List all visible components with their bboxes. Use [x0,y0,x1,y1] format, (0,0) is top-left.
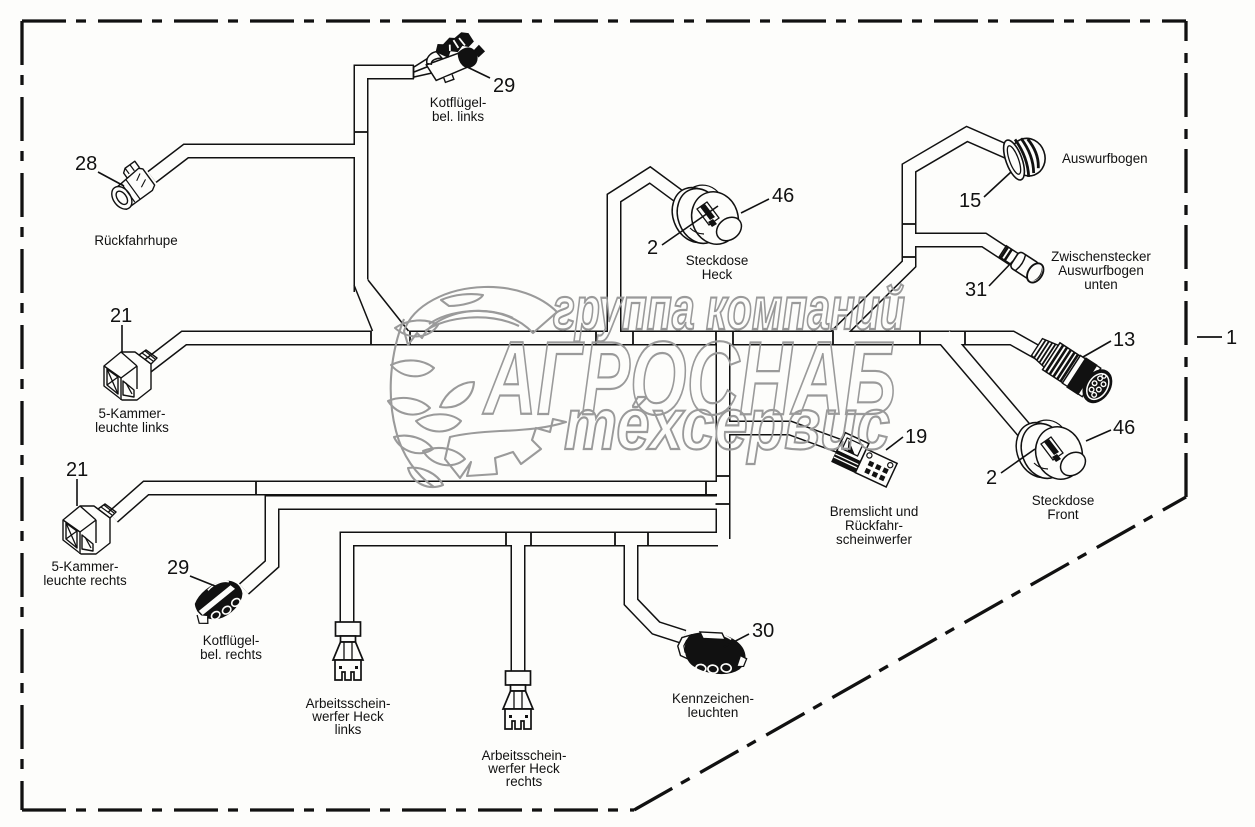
svg-text:Kotflügel-: Kotflügel- [203,633,260,648]
svg-text:29: 29 [493,75,515,97]
svg-text:unten: unten [1084,277,1118,292]
svg-text:rechts: rechts [506,774,543,789]
svg-text:29: 29 [167,557,189,579]
svg-text:Auswurfbogen: Auswurfbogen [1058,263,1144,278]
svg-text:19: 19 [905,426,927,448]
svg-text:Auswurfbogen: Auswurfbogen [1062,151,1148,166]
svg-text:5-Kammer-: 5-Kammer- [52,559,119,574]
svg-text:Kennzeichen-: Kennzeichen- [672,691,754,706]
svg-text:2: 2 [647,237,658,259]
svg-text:те́хсервис: те́хсервис [564,385,890,465]
svg-text:leuchte links: leuchte links [95,420,169,435]
svg-text:leuchte rechts: leuchte rechts [43,573,127,588]
svg-text:5-Kammer-: 5-Kammer- [99,406,166,421]
svg-text:46: 46 [772,185,794,207]
svg-text:15: 15 [959,190,981,212]
svg-text:scheinwerfer: scheinwerfer [836,532,912,547]
svg-text:Kotflügel-: Kotflügel- [430,95,487,110]
svg-text:Rückfahrhupe: Rückfahrhupe [94,233,177,248]
svg-text:13: 13 [1113,329,1135,351]
svg-text:30: 30 [752,620,774,642]
svg-text:Front: Front [1047,507,1079,522]
svg-text:links: links [335,722,362,737]
svg-text:Bremslicht und: Bremslicht und [830,504,919,519]
svg-text:1: 1 [1226,327,1237,349]
svg-text:Steckdose: Steckdose [686,253,749,268]
svg-text:Zwischenstecker: Zwischenstecker [1051,249,1151,264]
svg-text:21: 21 [110,305,132,327]
svg-text:31: 31 [965,279,987,301]
svg-text:2: 2 [986,467,997,489]
svg-text:bel. links: bel. links [432,109,484,124]
svg-text:46: 46 [1113,417,1135,439]
svg-text:bel. rechts: bel. rechts [200,647,262,662]
svg-text:leuchten: leuchten [688,705,739,720]
svg-text:28: 28 [75,153,97,175]
svg-text:Rückfahr-: Rückfahr- [845,518,903,533]
svg-text:Steckdose: Steckdose [1032,493,1095,508]
svg-text:21: 21 [66,459,88,481]
